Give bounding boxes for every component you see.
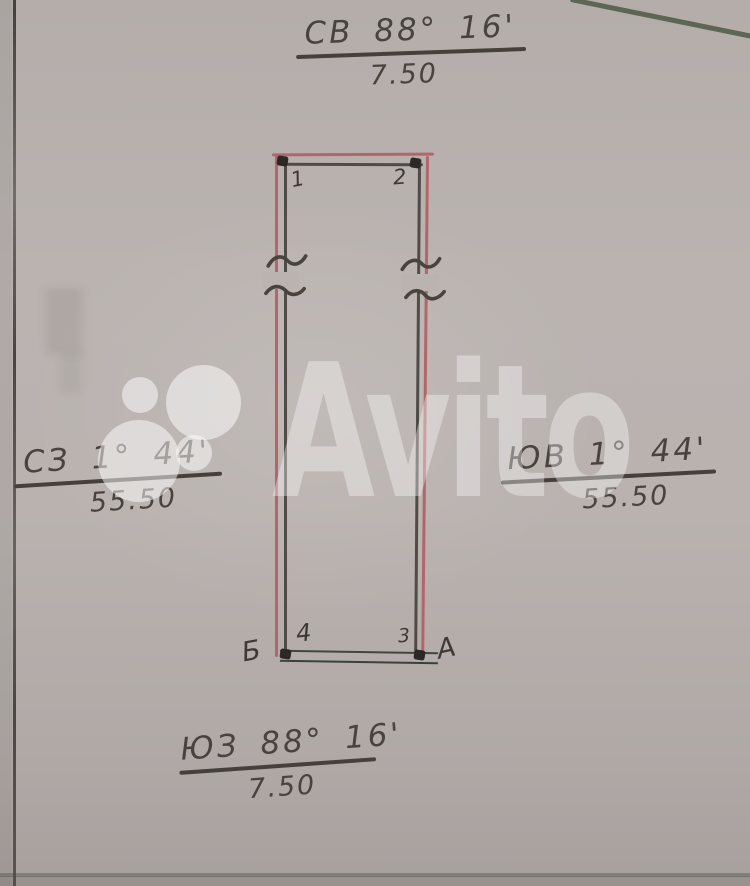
ink-bleed-smudge <box>60 352 82 394</box>
bearing-left: СЗ 1° 44' 55.50 <box>12 434 224 521</box>
ink-bleed-smudge <box>46 288 82 354</box>
diagonal-boundary-line <box>570 0 750 42</box>
corner-point-marker-4 <box>279 648 291 660</box>
bearing-top-distance: 7.50 <box>288 57 519 92</box>
plot-boundary-red-top <box>272 153 434 157</box>
corner-point-marker-2 <box>409 157 421 169</box>
plot-boundary-red-left <box>275 155 278 657</box>
bearing-bottom: ЮЗ 88° 16' 7.50 <box>177 717 409 807</box>
page-margin-line <box>13 0 16 886</box>
plot-boundary-ink-right <box>414 165 420 656</box>
point-label-b: Б <box>240 637 263 667</box>
bearing-right-label: ЮВ 1° 44' <box>499 431 715 476</box>
break-tilde-icon <box>402 284 449 308</box>
break-tilde-icon <box>397 252 444 277</box>
avito-logo-circle-icon <box>122 377 158 413</box>
break-tilde-icon <box>263 250 310 274</box>
corner-point-marker-1 <box>276 155 288 167</box>
vertex-label-2: 2 <box>392 167 407 189</box>
corner-point-marker-3 <box>413 649 425 661</box>
plot-boundary-red-right <box>421 156 429 657</box>
vertex-label-1: 1 <box>289 168 306 191</box>
bearing-top: СВ 88° 16' 7.50 <box>295 9 527 92</box>
bearing-left-distance: 55.50 <box>29 480 238 520</box>
scanned-survey-plan-page: 1 2 3 4 Б А СВ 88° 16' 7.50 СЗ 1° 44' 55… <box>0 0 750 886</box>
bearing-right-distance: 55.50 <box>518 478 734 516</box>
bearing-top-label: СВ 88° 16' <box>295 9 526 51</box>
plot-boundary-ink-left <box>284 165 287 656</box>
scan-edge-shadow <box>0 0 12 886</box>
bearing-right: ЮВ 1° 44' 55.50 <box>499 431 718 517</box>
vertex-label-4: 4 <box>295 620 313 645</box>
bottom-scan-shade <box>0 876 750 886</box>
vertex-label-3: 3 <box>397 627 410 647</box>
break-tilde-icon <box>262 280 309 304</box>
avito-logo-circle-icon <box>166 365 241 440</box>
